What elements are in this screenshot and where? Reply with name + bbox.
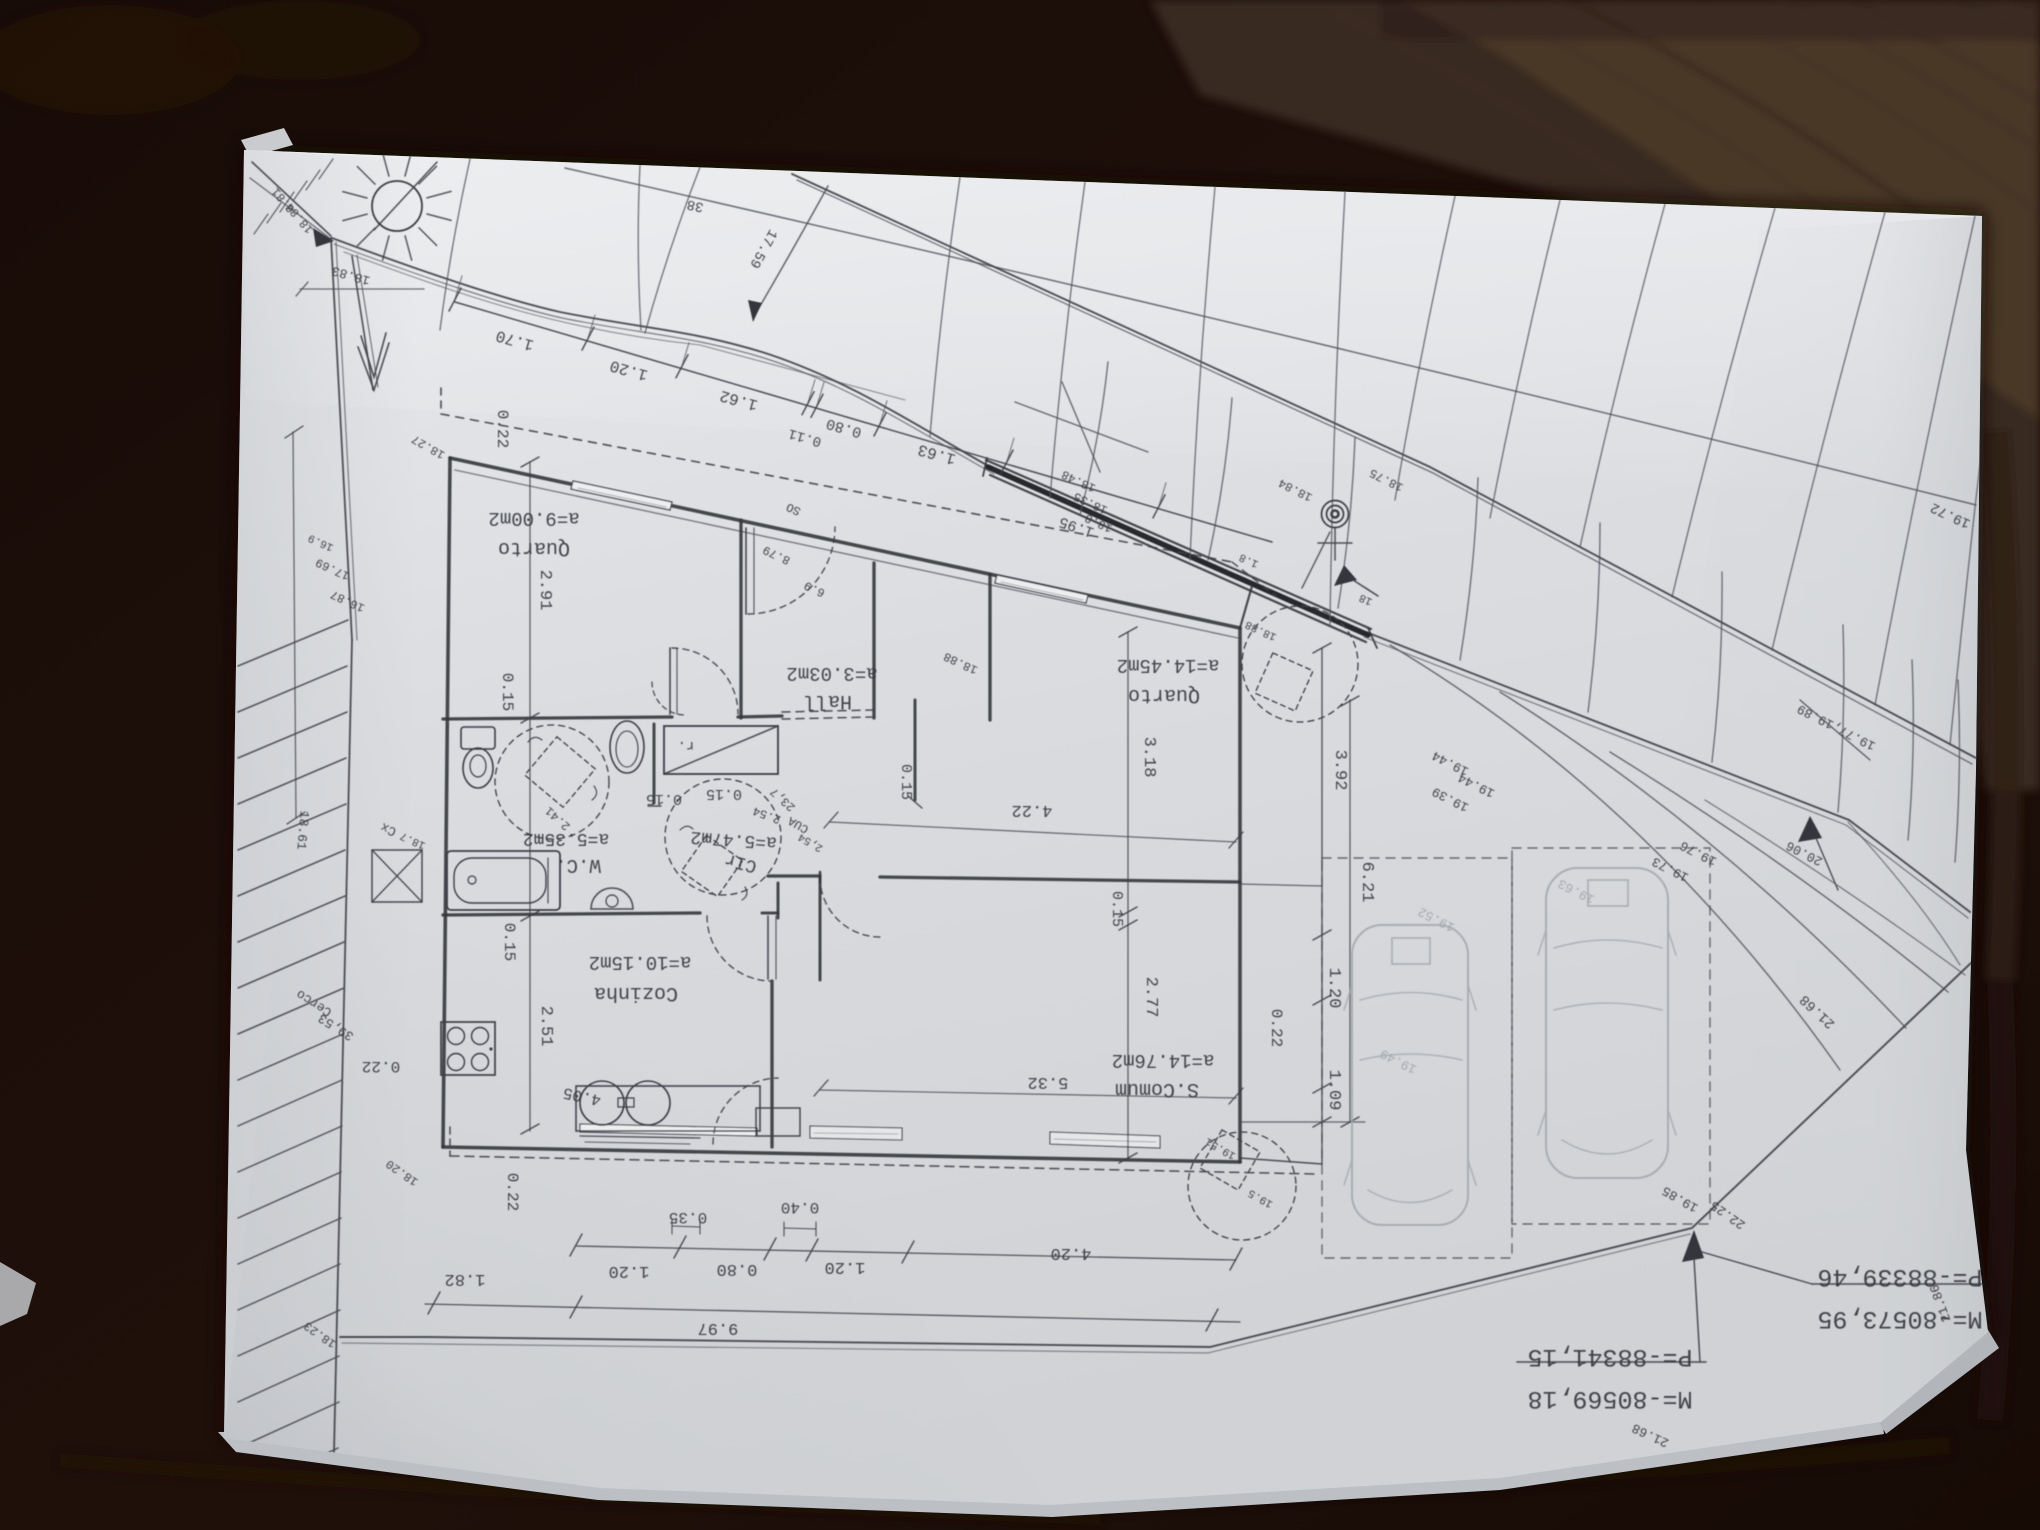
svg-text:1.09: 1.09 <box>1324 1070 1343 1111</box>
svg-text:9.97: 9.97 <box>698 1318 739 1337</box>
svg-text:0.15: 0.15 <box>498 673 516 711</box>
svg-text:0.15: 0.15 <box>500 923 518 961</box>
svg-text:P=-88339,46: P=-88339,46 <box>1817 1262 1982 1291</box>
svg-text:5.32: 5.32 <box>1028 1072 1069 1091</box>
svg-text:2.51: 2.51 <box>536 1006 555 1047</box>
svg-text:r.: r. <box>678 737 695 753</box>
svg-text:4.22: 4.22 <box>1012 800 1053 819</box>
svg-text:W.C.: W.C. <box>555 854 601 876</box>
svg-text:2.91: 2.91 <box>535 570 554 611</box>
svg-text:0.22: 0.22 <box>493 410 511 448</box>
svg-text:a=14.45m2: a=14.45m2 <box>1117 654 1220 676</box>
svg-text:Quarto: Quarto <box>1128 683 1200 706</box>
svg-text:Cozinha: Cozinha <box>594 981 678 1004</box>
svg-text:0.15: 0.15 <box>706 785 742 802</box>
svg-text:0.15: 0.15 <box>1108 891 1125 927</box>
svg-text:1.82: 1.82 <box>445 1269 486 1288</box>
svg-text:3.18: 3.18 <box>1139 737 1158 778</box>
svg-text:0.80: 0.80 <box>717 1259 758 1278</box>
svg-text:4.20: 4.20 <box>1051 1243 1092 1262</box>
svg-text:0.15: 0.15 <box>646 790 682 807</box>
svg-text:0.22: 0.22 <box>1267 1009 1285 1047</box>
svg-text:3.92: 3.92 <box>1330 750 1349 791</box>
svg-text:Quarto: Quarto <box>498 536 570 559</box>
svg-text:38: 38 <box>685 195 705 214</box>
svg-text:0.15: 0.15 <box>897 764 914 800</box>
svg-text:a=10.15m2: a=10.15m2 <box>589 951 692 973</box>
svg-text:0.40: 0.40 <box>781 1198 819 1216</box>
svg-text:1.20: 1.20 <box>1324 968 1343 1009</box>
svg-text:P=-88341,15: P=-88341,15 <box>1527 1342 1692 1371</box>
svg-text:0.22: 0.22 <box>362 1057 400 1075</box>
svg-text:a=9.00m2: a=9.00m2 <box>488 507 579 529</box>
svg-text:M=-80569,18: M=-80569,18 <box>1527 1384 1692 1413</box>
svg-text:1.20: 1.20 <box>609 1261 650 1280</box>
svg-text:1.20: 1.20 <box>825 1257 866 1276</box>
svg-text:M=-80573,95: M=-80573,95 <box>1817 1304 1982 1333</box>
svg-text:Hall: Hall <box>804 689 852 712</box>
svg-text:0.35: 0.35 <box>669 1208 707 1226</box>
svg-text:0.22: 0.22 <box>503 1173 521 1211</box>
svg-text:a=3.03m2: a=3.03m2 <box>786 662 877 684</box>
svg-text:a=14.76m2: a=14.76m2 <box>1112 1049 1215 1071</box>
svg-text:2.77: 2.77 <box>1141 977 1160 1018</box>
svg-text:6.21: 6.21 <box>1357 862 1376 903</box>
